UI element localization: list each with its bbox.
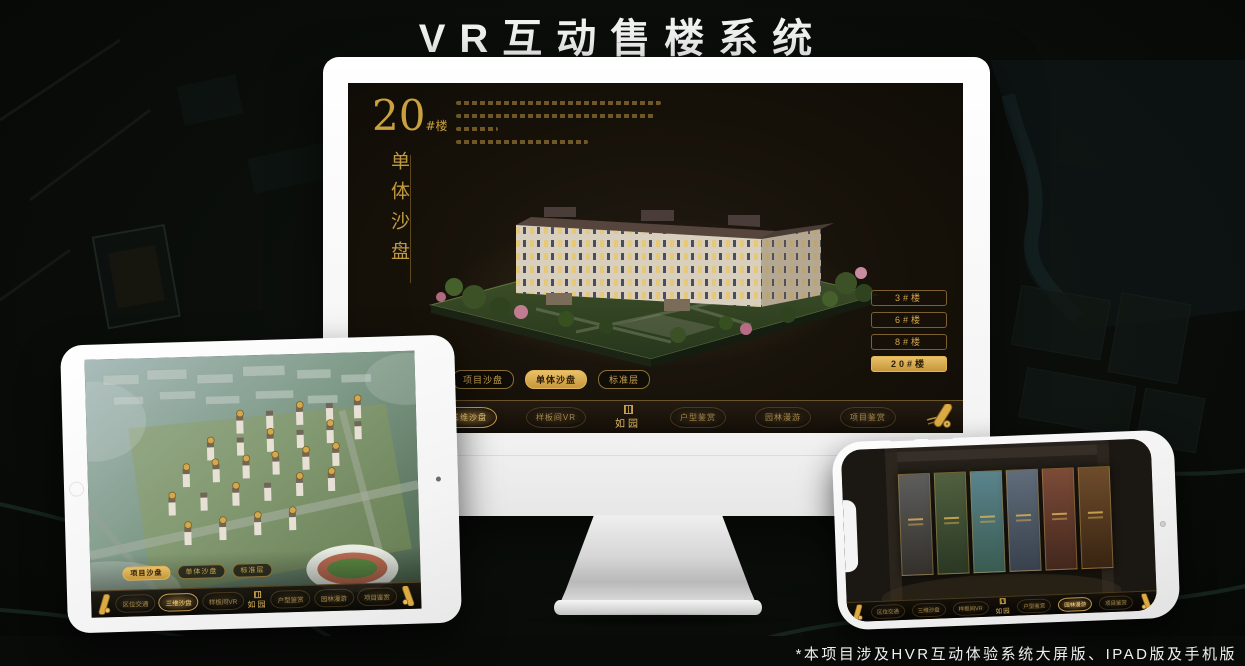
- headline-rule: [410, 155, 411, 283]
- phone-device: 区位交通 三维沙盘 样板间VR 如园 户型鉴赏 园林漫游 项目鉴赏: [832, 430, 1181, 631]
- phone-volume-button[interactable]: [889, 436, 915, 441]
- building-number: 20: [372, 91, 425, 140]
- tab-single-sandtable[interactable]: 单体沙盘: [525, 370, 587, 389]
- monitor-shadow: [523, 613, 793, 627]
- seal-icon: [1000, 598, 1006, 604]
- building-selector-group: 3#楼 6#楼 8#楼 20#楼: [871, 290, 947, 372]
- promo-canvas: VR互动售楼系统 20#楼 单体沙盘: [0, 0, 1245, 666]
- building-button-20[interactable]: 20#楼: [871, 356, 947, 372]
- tablet-camera-icon: [436, 476, 441, 481]
- nav-item-unit-appreciation[interactable]: 户型鉴赏: [270, 590, 310, 609]
- scroll-menu-icon[interactable]: [1140, 593, 1154, 609]
- tab-project-sandtable[interactable]: 项目沙盘: [452, 370, 514, 389]
- description-text-line: [456, 127, 498, 131]
- scroll-menu-icon[interactable]: [851, 604, 865, 620]
- nav-item-showroom-vr[interactable]: 样板间VR: [526, 407, 586, 428]
- scene-panel-interior[interactable]: [898, 473, 934, 576]
- nav-item-3d-sandtable[interactable]: 三维沙盘: [911, 602, 946, 617]
- building-button-8[interactable]: 8#楼: [871, 334, 947, 350]
- view-mode-tabs: 项目沙盘 单体沙盘 标准层: [452, 370, 650, 389]
- brand-logo-text: 如园: [247, 598, 267, 610]
- seal-icon: [254, 591, 261, 598]
- scroll-menu-icon[interactable]: [400, 586, 417, 606]
- nav-item-showroom-vr[interactable]: 样板间VR: [202, 592, 245, 611]
- building-number-suffix: #楼: [425, 119, 447, 133]
- building-button-3[interactable]: 3#楼: [871, 290, 947, 306]
- page-title: VR互动售楼系统: [0, 6, 1245, 64]
- nav-item-garden-roam[interactable]: 园林漫游: [755, 407, 811, 428]
- scene-panel-gallery: [898, 466, 1114, 576]
- description-paragraph: [456, 101, 661, 153]
- brand-logo: 如园: [615, 405, 641, 430]
- nav-item-garden-roam[interactable]: 园林漫游: [314, 588, 354, 607]
- nav-item-showroom-vr[interactable]: 样板间VR: [952, 600, 989, 615]
- building-model-illustration: [416, 147, 886, 387]
- description-text-line: [456, 140, 588, 144]
- nav-item-project-appreciation[interactable]: 项目鉴赏: [1099, 595, 1134, 610]
- footnote-text: *本项目涉及HVR互动体验系统大屏版、IPAD版及手机版: [796, 643, 1237, 664]
- headline-subtitle: 单体沙盘: [386, 151, 413, 301]
- nav-item-3d-sandtable[interactable]: 三维沙盘: [158, 593, 198, 612]
- brand-logo: 如园: [995, 598, 1011, 616]
- building-button-6[interactable]: 6#楼: [871, 312, 947, 328]
- tablet-tab-single-sandtable[interactable]: 单体沙盘: [177, 564, 225, 579]
- brand-logo-text: 如园: [615, 415, 641, 430]
- scene-panel-courtyard[interactable]: [934, 472, 970, 575]
- tablet-device: 项目沙盘 单体沙盘 标准层 区位交通 三维沙盘 样板间VR 如园 户型鉴赏 园林…: [60, 335, 462, 634]
- tablet-screen: 项目沙盘 单体沙盘 标准层 区位交通 三维沙盘 样板间VR 如园 户型鉴赏 园林…: [84, 351, 421, 618]
- scene-panel-building[interactable]: [1006, 469, 1042, 572]
- monitor-stand-neck: [558, 515, 758, 608]
- nav-item-unit-appreciation[interactable]: 户型鉴赏: [670, 407, 726, 428]
- scene-panel-lounge[interactable]: [1078, 466, 1114, 569]
- scene-panel-autumn[interactable]: [1042, 467, 1078, 570]
- nav-item-project-appreciation[interactable]: 项目鉴赏: [357, 587, 397, 606]
- phone-notch: [843, 500, 859, 572]
- nav-item-location-traffic[interactable]: 区位交通: [871, 603, 906, 618]
- description-text-line: [456, 114, 654, 118]
- scene-panel-landscape[interactable]: [970, 470, 1006, 573]
- description-text-line: [456, 101, 661, 105]
- phone-camera-icon: [1160, 521, 1166, 527]
- brand-logo: 如园: [247, 590, 268, 610]
- phone-volume-button[interactable]: [927, 435, 953, 440]
- scroll-menu-icon[interactable]: [925, 404, 955, 430]
- tablet-home-button[interactable]: [69, 481, 84, 496]
- tablet-tab-project-sandtable[interactable]: 项目沙盘: [122, 566, 170, 581]
- building-headline: 20#楼: [372, 95, 448, 137]
- tablet-tab-standard-floor[interactable]: 标准层: [232, 563, 272, 578]
- nav-item-project-appreciation[interactable]: 项目鉴赏: [840, 407, 896, 428]
- seal-icon: [624, 405, 633, 414]
- brand-logo-text: 如园: [995, 605, 1010, 616]
- nav-item-unit-appreciation[interactable]: 户型鉴赏: [1017, 598, 1052, 613]
- nav-item-garden-roam[interactable]: 园林漫游: [1058, 596, 1093, 611]
- tab-standard-floor[interactable]: 标准层: [598, 370, 650, 389]
- nav-item-location-traffic[interactable]: 区位交通: [115, 594, 155, 613]
- phone-screen: 区位交通 三维沙盘 样板间VR 如园 户型鉴赏 园林漫游 项目鉴赏: [841, 438, 1157, 622]
- scroll-menu-icon[interactable]: [96, 594, 113, 614]
